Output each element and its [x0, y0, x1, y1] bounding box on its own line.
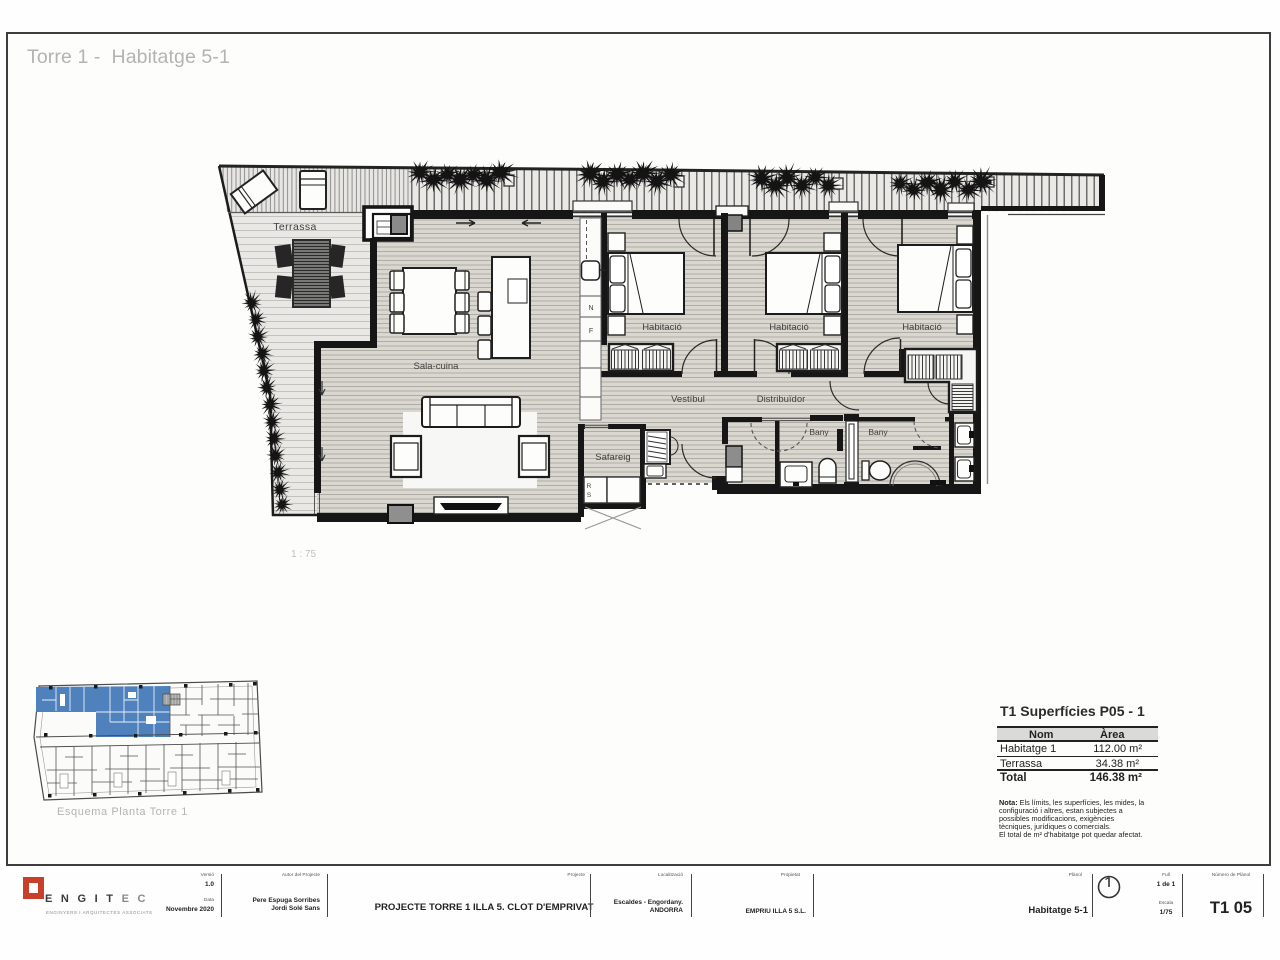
svg-text:Terrassa: Terrassa [273, 221, 316, 233]
svg-text:Habitació: Habitació [642, 322, 682, 333]
svg-text:F: F [589, 328, 593, 335]
svg-text:Vestíbul: Vestíbul [671, 394, 705, 405]
svg-text:Habitació: Habitació [769, 322, 809, 333]
svg-text:Habitació: Habitació [902, 322, 942, 333]
svg-text:Distribuïdor: Distribuïdor [757, 394, 806, 405]
svg-text:Safareig: Safareig [595, 452, 630, 463]
svg-text:Bany: Bany [809, 427, 829, 437]
svg-text:S: S [587, 492, 592, 499]
svg-text:Bany: Bany [868, 427, 888, 437]
svg-text:R: R [587, 483, 592, 490]
svg-text:N: N [588, 305, 593, 312]
svg-text:Sala-cuina: Sala-cuina [414, 361, 460, 372]
